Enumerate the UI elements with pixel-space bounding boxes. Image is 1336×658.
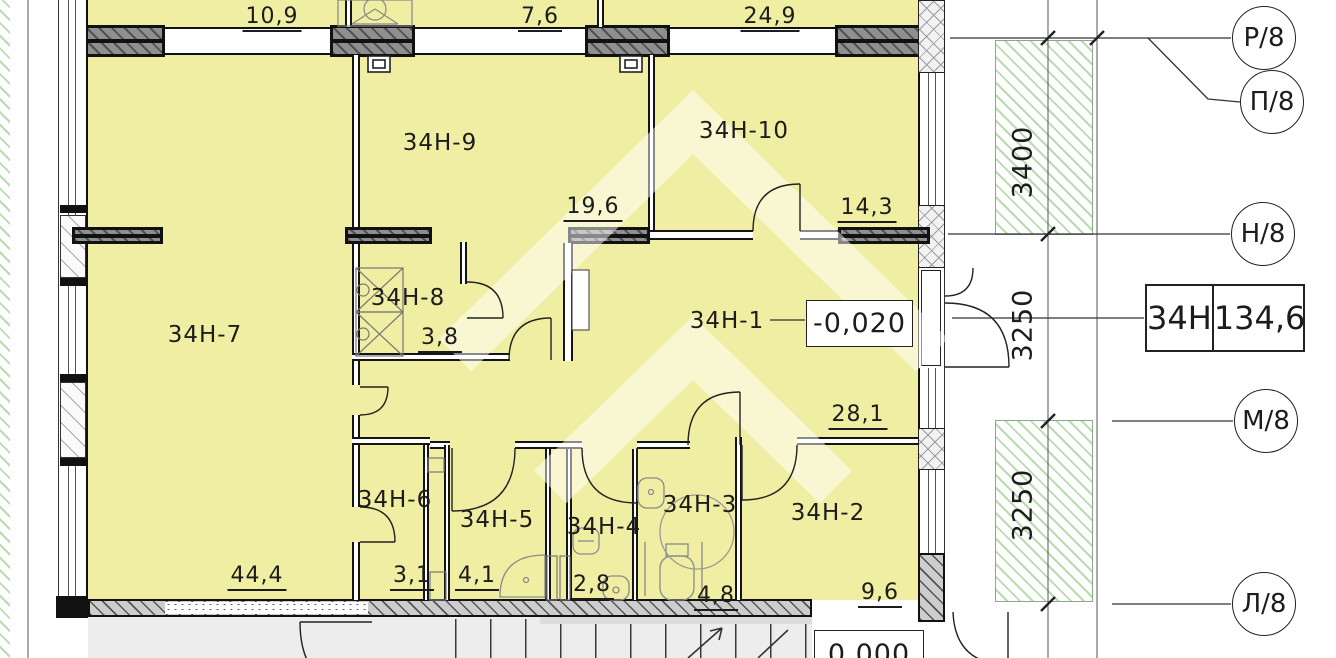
- room-label: 34Н-10: [699, 118, 789, 144]
- room-label: 34Н-6: [358, 487, 433, 513]
- stair-direction-arrow: [688, 628, 788, 658]
- room-label: 34Н-8: [371, 285, 446, 311]
- axis-bubble: М/8: [1234, 389, 1298, 453]
- dimension-label: 3250: [1008, 289, 1039, 362]
- axis-bubble: Н/8: [1231, 202, 1295, 266]
- area-label: 3,1: [390, 563, 434, 591]
- room-label: 34Н-3: [663, 492, 738, 518]
- top-wall-niches: [368, 56, 642, 72]
- area-label: 2,8: [570, 572, 614, 600]
- unit-total-area: 134,6: [1214, 286, 1306, 350]
- floor-plan-canvas: 10,9 7,6 24,9 34Н-7 34Н-9 34Н-10 34Н-8 3…: [0, 0, 1336, 658]
- room-label: 34Н-7: [168, 322, 243, 348]
- area-label: 9,6: [858, 580, 902, 608]
- area-label: 4,1: [455, 563, 499, 591]
- dimension-label: 3400: [1008, 126, 1039, 199]
- area-label: 19,6: [564, 194, 623, 222]
- area-label: 7,6: [518, 4, 562, 32]
- room-label: 34Н-2: [791, 500, 866, 526]
- axis-bubble: П/8: [1240, 70, 1304, 134]
- axis-bubble: Р/8: [1232, 6, 1296, 70]
- area-label: 14,3: [838, 195, 897, 223]
- area-label: 3,8: [418, 325, 462, 353]
- axis-bubble: Л/8: [1232, 572, 1296, 636]
- stair-elevation-box: 0,000: [814, 630, 924, 658]
- dimension-ticks: [1041, 31, 1104, 611]
- area-label: 28,1: [829, 402, 888, 430]
- area-label: 10,9: [243, 4, 302, 32]
- dimension-label: 3250: [1008, 469, 1039, 542]
- stair-elevation-value: 0,000: [828, 639, 910, 658]
- unit-number: 34Н: [1147, 286, 1214, 350]
- area-label: 24,9: [741, 4, 800, 32]
- area-label: 44,4: [228, 563, 287, 591]
- room-label: 34Н-5: [460, 507, 535, 533]
- area-label: 4,8: [694, 583, 738, 611]
- room-label: 34Н-4: [567, 514, 642, 540]
- elevation-value: -0,020: [813, 308, 906, 339]
- unit-summary-box: 34Н 134,6: [1145, 284, 1305, 352]
- room-label: 34Н-1: [690, 308, 765, 334]
- elevation-mark-box: -0,020: [806, 300, 913, 347]
- room-label: 34Н-9: [403, 130, 478, 156]
